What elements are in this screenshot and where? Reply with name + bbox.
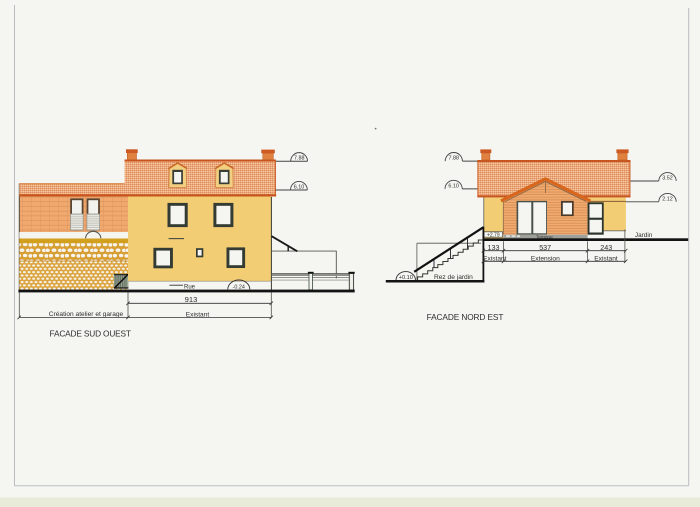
svg-text:Existant: Existant — [594, 255, 618, 262]
svg-text:7.88: 7.88 — [449, 156, 460, 162]
svg-text:Existant: Existant — [186, 311, 210, 318]
svg-text:133: 133 — [488, 243, 500, 252]
svg-text:+0.10: +0.10 — [399, 275, 413, 281]
svg-text:-0.24: -0.24 — [233, 284, 245, 290]
svg-text:FACADE NORD EST: FACADE NORD EST — [427, 312, 504, 322]
svg-text:+2.79: +2.79 — [487, 232, 500, 238]
svg-text:537: 537 — [539, 243, 551, 252]
svg-text:3.52: 3.52 — [662, 176, 673, 182]
svg-text:7.88: 7.88 — [294, 156, 305, 162]
svg-text:Création atelier et garage: Création atelier et garage — [49, 311, 124, 318]
svg-text:243: 243 — [600, 243, 612, 252]
svg-text:6.10: 6.10 — [294, 185, 305, 191]
svg-text:FACADE SUD OUEST: FACADE SUD OUEST — [50, 328, 132, 338]
svg-text:913: 913 — [185, 295, 198, 304]
svg-text:Jardin: Jardin — [635, 232, 653, 239]
svg-text:Existant: Existant — [483, 255, 507, 262]
svg-text:Extension: Extension — [531, 255, 560, 262]
svg-text:Rez de jardin: Rez de jardin — [434, 274, 473, 281]
svg-text:2.12: 2.12 — [662, 196, 673, 202]
svg-text:6.10: 6.10 — [448, 183, 459, 189]
